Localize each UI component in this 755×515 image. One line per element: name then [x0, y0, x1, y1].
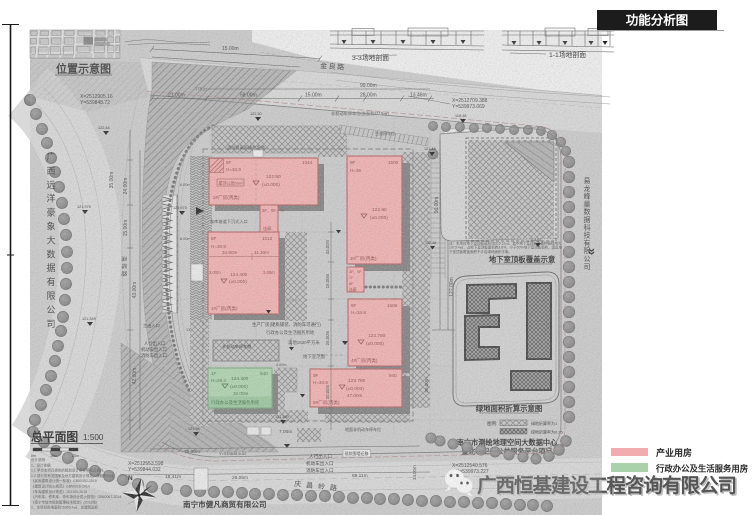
svg-text:产业用房: 产业用房 — [656, 447, 692, 458]
svg-text:行政办公及生活服务用房: 行政办公及生活服务用房 — [655, 464, 748, 474]
svg-text:功能分析图: 功能分析图 — [626, 13, 689, 28]
